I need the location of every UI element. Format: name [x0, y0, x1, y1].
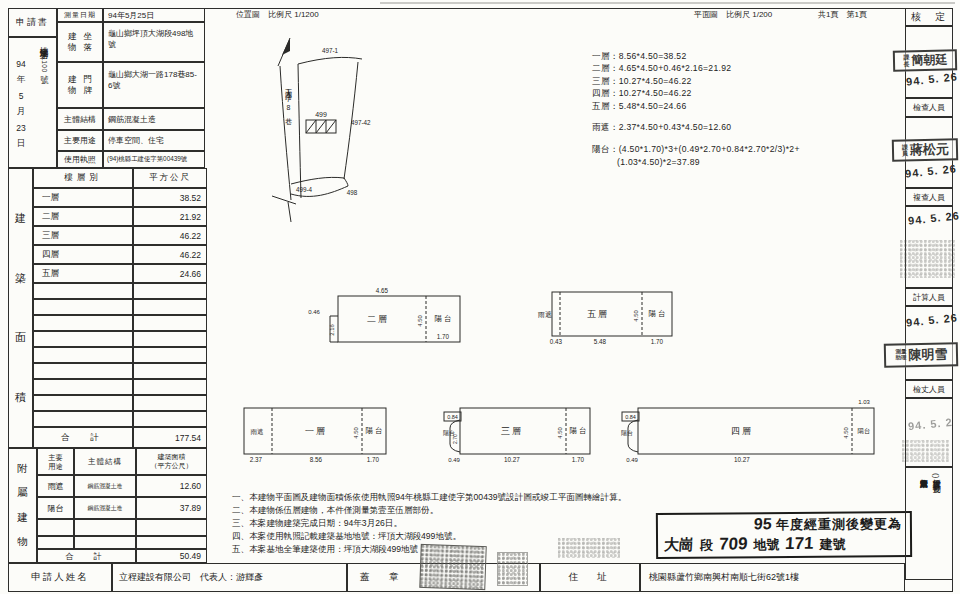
stamp-section-name: 大崗 [663, 536, 694, 555]
approval-calc-label: 計算人員 [905, 288, 953, 306]
dim-balcony-width: 1.70 [651, 338, 664, 345]
floor-row-value: 38.52 [133, 188, 207, 207]
empty-table-row [33, 395, 133, 411]
main-use-value: 停車空間、住宅 [103, 130, 205, 151]
annex-col-area: 建築面積 （平方公尺） [136, 448, 207, 475]
calculator-name-stamp: 測量助理 陳明雪 [884, 342, 958, 368]
floor-row-value: 24.66 [133, 264, 207, 283]
dim-height: 4.50 [353, 427, 359, 438]
annex-total-value: 50.49 [136, 549, 207, 563]
empty-table-row [33, 347, 133, 363]
building-survey-result-sheet: 申請書 94 年 5 月 23 日 桃測建字第 081100 號 測量日期 94… [0, 0, 960, 594]
application-label-cell: 申請書 [8, 8, 57, 37]
parcel-number: 497-1 [322, 47, 339, 54]
structure-value: 鋼筋混凝土造 [103, 108, 205, 130]
parcel-number: 499-4 [296, 186, 313, 193]
empty-table-row [33, 283, 133, 299]
dim-bump-width: 0.84 [447, 414, 458, 420]
approval-header: 核 定 [905, 8, 953, 26]
checker-name-stamp: 課員 蔣松元 [892, 138, 958, 161]
resurvey-change-stamp: 95 年度經重測後變更為 大崗 段 709 地號 171 建號 [656, 511, 912, 559]
empty-table-row [33, 299, 133, 315]
dim-main-width: 8.56 [310, 456, 323, 463]
floor-row-label: 一層 [33, 188, 133, 207]
license-value: (94)桃縣工建使字第00439號 [103, 151, 205, 168]
floor-plan-4f: 0.84 陽台 0.49 四層 陽台 10.27 1.03 4.50 [620, 394, 882, 468]
dim-height: 4.50 [633, 310, 639, 321]
empty-table-row [33, 315, 133, 331]
empty-table-row [37, 519, 74, 536]
empty-table-row [33, 331, 133, 347]
annex-row-value: 12.60 [136, 475, 207, 497]
structure-label: 主體結構 [57, 108, 103, 130]
floor-row-value: 46.22 [133, 226, 207, 245]
dim-height: 4.50 [843, 427, 849, 438]
balcony-label: 陽 台 [569, 426, 586, 435]
building-area-side-label: 建築面積 [8, 168, 33, 448]
balcony-label: 陽 台 [648, 309, 665, 318]
main-use-label: 主要用途 [57, 130, 103, 151]
floor-label: 二層 [367, 314, 389, 324]
parcel-number: 497-42 [351, 119, 371, 126]
dim-bump-bottom: 0.49 [626, 457, 638, 463]
situs-value: 龜山鄉坪頂大湖段498地號 [103, 22, 205, 62]
approval-footnote-cell: 本案依照分層負責規定 授權主管課(股)長判發 [905, 467, 953, 580]
doorplate-value: 龜山鄉大湖一路178巷85-6號 [103, 62, 205, 108]
balcony-label: 陽 台 [365, 426, 382, 435]
floor-label: 五層 [587, 309, 609, 319]
approval-recheck-label: 複查人員 [905, 188, 953, 206]
dim-bump-height: 2.70 [452, 434, 458, 444]
floor-plan-1f: 雨遮 一層 陽 台 2.37 8.56 1.70 4.50 [236, 394, 394, 468]
dim-main-width: 5.48 [594, 338, 607, 345]
approval-measure-label: 檢丈人員 [905, 380, 953, 398]
stamp-building-no: 171 [785, 534, 815, 554]
empty-table-row [33, 363, 133, 379]
dim-main-width: 10.27 [734, 456, 750, 463]
applicant-name-value: 立程建設有限公司 代表人：游輝彥 [112, 563, 347, 592]
annex-row-value: 37.89 [136, 497, 207, 519]
recheck-faint-stamp [900, 240, 955, 278]
floor-row-value: 46.22 [133, 245, 207, 264]
address-value-cell: 桃園縣蘆竹鄉南興村南順七街62號1樓 [640, 563, 905, 592]
dim-height: 4.50 [417, 315, 423, 326]
area-total-value: 177.54 [133, 427, 207, 448]
measure-faint-stamp [902, 440, 950, 462]
receipt-date-vertical: 94 年 5 月 23 日 [11, 56, 31, 152]
site-location-map: 499 497-1 497-42 499-4 498 [230, 24, 435, 229]
floor-row-label: 二層 [33, 207, 133, 226]
dim-bump-width: 0.84 [625, 414, 636, 420]
balcony-left-label: 陽台 [621, 430, 633, 437]
situs-label: 建物坐落 [57, 22, 103, 62]
annex-row-use: 雨遮 [37, 475, 74, 497]
floor-plan-5f: 雨遮 0.43 5.48 1.70 4.50 五層 陽 台 [536, 282, 690, 350]
area-total-label: 合 計 [33, 427, 133, 448]
empty-table-row [37, 536, 74, 549]
rain-cover-label: 雨遮 [251, 428, 265, 435]
road-name-label: 大湖一路178巷 [283, 84, 293, 164]
survey-date-value: 94年5月25日 [103, 8, 205, 22]
dim-bump-bottom: 0.49 [448, 457, 460, 463]
dim-notch-height: 2.16 [329, 324, 335, 335]
applicant-name-label: 申請人姓名 [8, 563, 112, 592]
annex-side-label: 附屬建物 [8, 448, 37, 563]
approval-check-label: 檢查人員 [905, 98, 953, 117]
rain-cover-label: 雨遮 [538, 310, 552, 318]
empty-table-row [33, 411, 133, 427]
dim-balcony-top: 1.03 [858, 399, 870, 405]
doorplate-label: 建物門牌 [57, 62, 103, 108]
address-label-cell: 住 址 [540, 563, 640, 592]
floor-plan-title: 平面圖 比例尺 1/200 [694, 9, 772, 20]
floor-label: 四層 [731, 426, 753, 436]
floor-label: 一層 [305, 426, 327, 436]
survey-date-label: 測量日期 [57, 8, 103, 22]
receipt-number-cell: 94 年 5 月 23 日 桃測建字第 081100 號 [8, 37, 57, 168]
floor-row-label: 五層 [33, 264, 133, 283]
parcel-number: 499 [315, 111, 327, 118]
personal-seal-stamp [497, 552, 528, 586]
license-label: 使用執照 [57, 151, 103, 168]
dim-main-width: 4.65 [376, 287, 389, 294]
location-map-title: 位置圖 比例尺 1/1200 [236, 9, 319, 20]
col-header-sqm: 平方公尺 [133, 168, 207, 188]
footnote-col-1: 本案依照分層負責規定 [918, 473, 927, 579]
receipt-no-vertical: 桃測建字第 081100 號 [33, 40, 56, 167]
floor-plan-3f: 0.84 陽台 2.70 0.49 三層 陽 台 10.27 1.70 4.50 [442, 394, 598, 468]
stamp-year: 95 [754, 515, 773, 533]
page-count: 共1頁 第1頁 [818, 9, 867, 20]
annex-row-structure: 鋼筋混凝土造 [74, 497, 136, 519]
annex-row-use: 陽台 [37, 497, 74, 519]
floor-row-label: 三層 [33, 226, 133, 245]
balcony-label: 陽台 [858, 427, 871, 435]
floor-plan-2f: 4.65 0.46 2.16 4.50 1.70 二層 陽 台 [300, 284, 480, 356]
stamp-parcel-no: 709 [718, 534, 748, 554]
annex-col-use: 主要 用途 [37, 448, 74, 475]
footnote-col-2: 授權主管課(股)長判發 [931, 473, 940, 579]
area-calculation-block: 一層：8.56*4.50=38.52 二層：4.65*4.50+0.46*2.1… [592, 50, 892, 168]
floor-row-label: 四層 [33, 245, 133, 264]
annex-row-structure: 鋼筋混凝土造 [74, 475, 136, 497]
scan-artifact-line [380, 2, 955, 4]
annex-total-label: 合 計 [37, 549, 136, 563]
col-header-floor: 樓層別 [33, 168, 133, 188]
dim-main-width: 10.27 [504, 456, 520, 463]
chief-name-stamp: 課長 簡朝廷 [893, 49, 957, 71]
dim-rain-width: 0.43 [550, 338, 563, 345]
dim-height: 4.50 [557, 427, 563, 438]
receipt-no-rotated: 081100 [41, 48, 48, 72]
dim-rain-width: 2.37 [250, 456, 263, 463]
balcony-label: 陽 台 [434, 314, 451, 323]
annex-col-structure: 主體結構 [74, 448, 136, 475]
empty-table-row [33, 379, 133, 395]
dim-balcony-width: 1.70 [437, 333, 450, 340]
floor-row-value: 21.92 [133, 207, 207, 226]
parcel-number: 498 [347, 189, 358, 196]
dim-balcony-width: 1.70 [572, 456, 585, 463]
floor-label: 三層 [501, 426, 523, 436]
dim-notch-width: 0.46 [308, 309, 320, 315]
dim-balcony-width: 1.70 [367, 456, 380, 463]
